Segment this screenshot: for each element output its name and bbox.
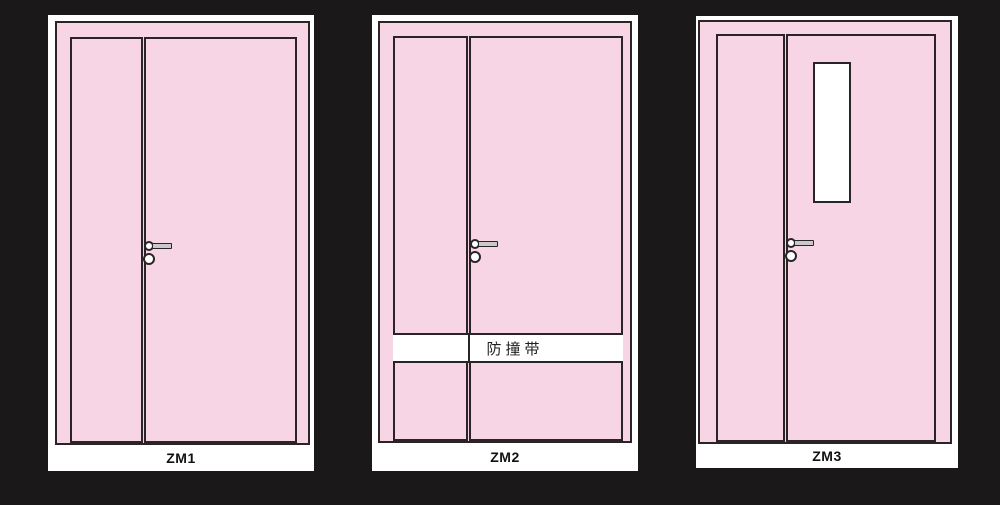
- door-leaf-right: [786, 34, 936, 442]
- crash-band: 防撞带: [393, 333, 623, 363]
- handle-lever-icon: [478, 241, 498, 247]
- lock-cylinder-icon: [469, 251, 481, 263]
- door-figure-zm3: ZM3: [696, 16, 958, 468]
- handle-lever-icon: [794, 240, 814, 246]
- door-frame: 防撞带: [378, 21, 632, 443]
- door-leaf-right: [144, 37, 297, 443]
- lock-cylinder-icon: [143, 253, 155, 265]
- door-label: ZM3: [696, 444, 958, 468]
- handle-lever-icon: [152, 243, 172, 249]
- door-figure-zm2: 防撞带 ZM2: [372, 15, 638, 471]
- door-label: ZM2: [372, 443, 638, 471]
- door-label: ZM1: [48, 445, 314, 471]
- door-frame: [698, 20, 952, 444]
- door-figure-zm1: ZM1: [48, 15, 314, 471]
- door-leaf-left: [70, 37, 143, 443]
- door-leaf-right: [469, 36, 623, 441]
- door-frame: [55, 21, 310, 445]
- lock-cylinder-icon: [785, 250, 797, 262]
- vision-panel-window: [813, 62, 851, 203]
- crash-band-label: 防撞带: [486, 338, 543, 359]
- crash-band-divider: [468, 335, 470, 361]
- door-leaf-left: [393, 36, 468, 441]
- door-leaf-left: [716, 34, 785, 442]
